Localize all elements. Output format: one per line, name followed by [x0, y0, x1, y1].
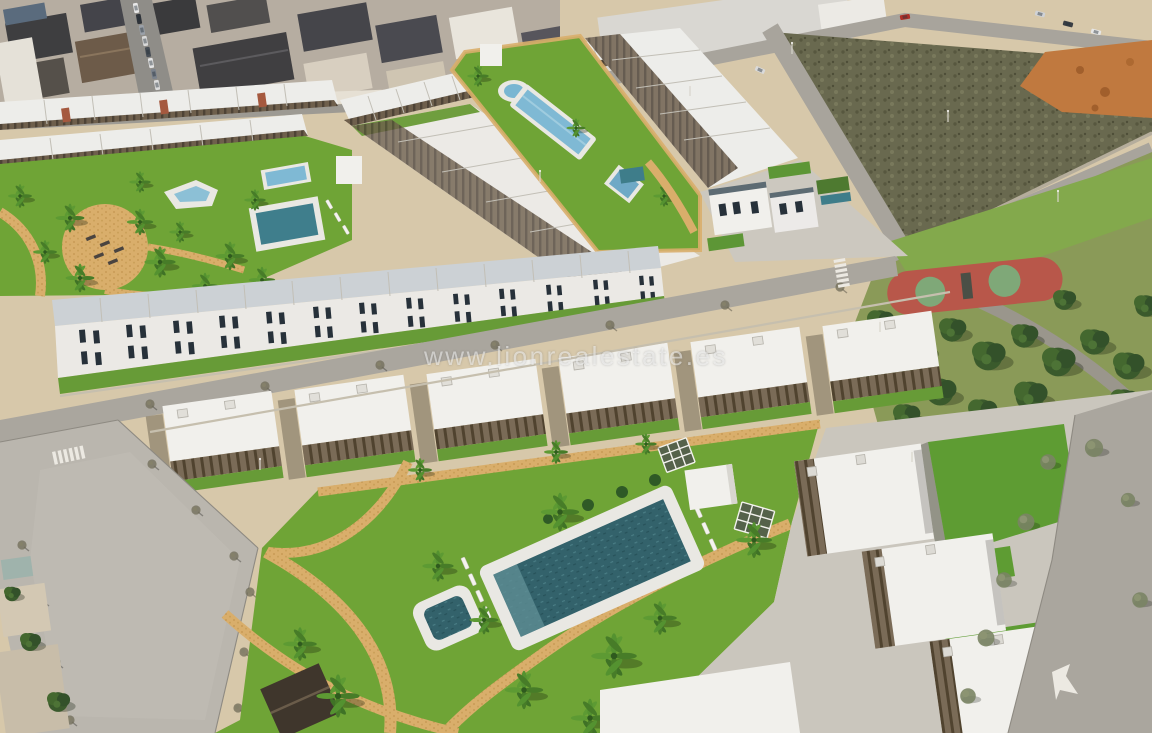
pool-cube-building: [684, 464, 737, 510]
aerial-render-screenshot: www.lionrealestate.es: [0, 0, 1152, 733]
pool-house-cube: [480, 44, 502, 66]
apartment-block-se-a: [794, 444, 934, 557]
aerial-render-scene: [0, 0, 1152, 733]
garden-cube: [336, 156, 362, 184]
